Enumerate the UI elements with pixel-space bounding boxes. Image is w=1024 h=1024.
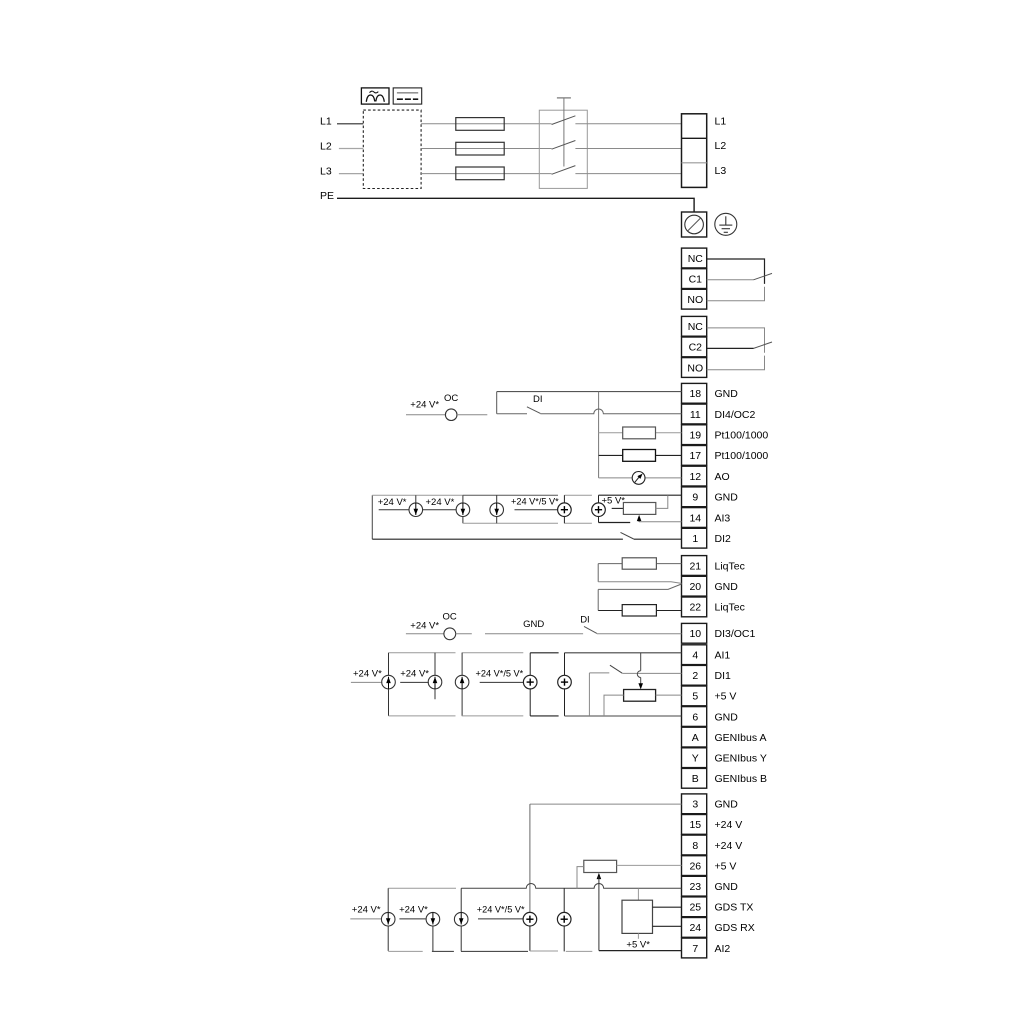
svg-text:GENIbus A: GENIbus A (715, 732, 767, 744)
svg-text:DI: DI (580, 614, 590, 625)
svg-text:C2: C2 (689, 342, 703, 354)
svg-text:22: 22 (689, 602, 701, 614)
svg-text:L1: L1 (715, 115, 727, 127)
svg-text:3: 3 (692, 799, 698, 811)
svg-text:DI3/OC1: DI3/OC1 (715, 628, 756, 640)
svg-text:+24 V*: +24 V* (426, 497, 455, 508)
svg-text:+5 V: +5 V (715, 691, 737, 703)
svg-text:+5 V*: +5 V* (626, 940, 650, 951)
svg-text:+24 V*: +24 V* (400, 668, 429, 679)
svg-text:LiqTec: LiqTec (715, 560, 745, 572)
svg-text:12: 12 (689, 471, 701, 483)
svg-text:Pt100/1000: Pt100/1000 (715, 450, 769, 462)
svg-text:2: 2 (692, 670, 698, 682)
svg-text:26: 26 (689, 860, 701, 872)
svg-text:14: 14 (689, 512, 701, 524)
svg-text:24: 24 (689, 922, 701, 934)
svg-text:NO: NO (687, 294, 703, 306)
svg-text:GND: GND (715, 799, 739, 811)
svg-text:C1: C1 (689, 273, 703, 285)
svg-text:+24 V*/5 V*: +24 V*/5 V* (477, 905, 525, 915)
svg-text:DI4/OC2: DI4/OC2 (715, 409, 756, 421)
svg-text:8: 8 (692, 840, 698, 852)
svg-text:GND: GND (715, 581, 739, 593)
svg-text:DI: DI (533, 394, 543, 405)
svg-text:+24 V*: +24 V* (353, 668, 382, 679)
svg-text:LiqTec: LiqTec (715, 602, 745, 614)
svg-text:AO: AO (715, 471, 730, 483)
svg-text:AI2: AI2 (715, 943, 731, 955)
svg-text:18: 18 (689, 388, 701, 400)
svg-text:7: 7 (692, 943, 698, 955)
svg-text:GDS TX: GDS TX (715, 902, 754, 914)
svg-text:GND: GND (523, 619, 544, 630)
svg-text:A: A (692, 732, 699, 744)
svg-text:6: 6 (692, 711, 698, 723)
svg-text:+24 V*/5 V*: +24 V*/5 V* (511, 497, 559, 507)
svg-text:23: 23 (689, 881, 701, 893)
svg-text:L1: L1 (320, 116, 332, 128)
svg-text:AI3: AI3 (715, 512, 731, 524)
svg-text:17: 17 (689, 450, 701, 462)
svg-text:GENIbus B: GENIbus B (715, 773, 768, 785)
svg-text:GDS RX: GDS RX (715, 922, 755, 934)
svg-text:+5 V*: +5 V* (602, 495, 626, 506)
svg-text:GND: GND (715, 711, 739, 723)
svg-text:PE: PE (320, 190, 334, 202)
svg-text:GND: GND (715, 881, 739, 893)
svg-text:+24 V*/5 V*: +24 V*/5 V* (476, 669, 524, 679)
svg-text:+24 V*: +24 V* (352, 905, 381, 916)
svg-text:21: 21 (689, 560, 701, 572)
svg-text:+24 V*: +24 V* (410, 620, 439, 631)
svg-text:GND: GND (715, 388, 739, 400)
svg-text:20: 20 (689, 581, 701, 593)
svg-text:+24 V*: +24 V* (399, 905, 428, 916)
svg-text:AI1: AI1 (715, 650, 731, 662)
svg-text:DI2: DI2 (715, 533, 732, 545)
svg-text:OC: OC (443, 612, 457, 623)
svg-text:L2: L2 (320, 140, 332, 152)
svg-text:+24 V: +24 V (715, 840, 743, 852)
svg-text:10: 10 (689, 628, 701, 640)
svg-text:GND: GND (715, 492, 739, 504)
svg-text:5: 5 (692, 691, 698, 703)
svg-text:1: 1 (692, 533, 698, 545)
svg-text:+24 V: +24 V (715, 819, 743, 831)
svg-text:DI1: DI1 (715, 670, 732, 682)
svg-text:GENIbus Y: GENIbus Y (715, 753, 767, 765)
svg-text:11: 11 (690, 409, 701, 421)
svg-text:NC: NC (688, 321, 704, 333)
svg-text:+24 V*: +24 V* (378, 497, 407, 508)
svg-text:+24 V*: +24 V* (410, 400, 439, 411)
svg-text:Pt100/1000: Pt100/1000 (715, 430, 769, 442)
svg-text:Y: Y (692, 753, 699, 765)
svg-text:L2: L2 (715, 140, 727, 152)
svg-text:19: 19 (689, 430, 701, 442)
svg-text:NC: NC (688, 253, 704, 265)
svg-text:NO: NO (687, 362, 703, 374)
svg-text:OC: OC (444, 393, 458, 404)
svg-text:15: 15 (689, 819, 701, 831)
svg-text:+5 V: +5 V (715, 860, 737, 872)
svg-text:L3: L3 (715, 165, 727, 177)
svg-text:25: 25 (689, 902, 701, 914)
svg-text:B: B (692, 773, 699, 785)
svg-text:9: 9 (692, 492, 698, 504)
svg-text:L3: L3 (320, 165, 332, 177)
svg-text:4: 4 (692, 650, 698, 662)
